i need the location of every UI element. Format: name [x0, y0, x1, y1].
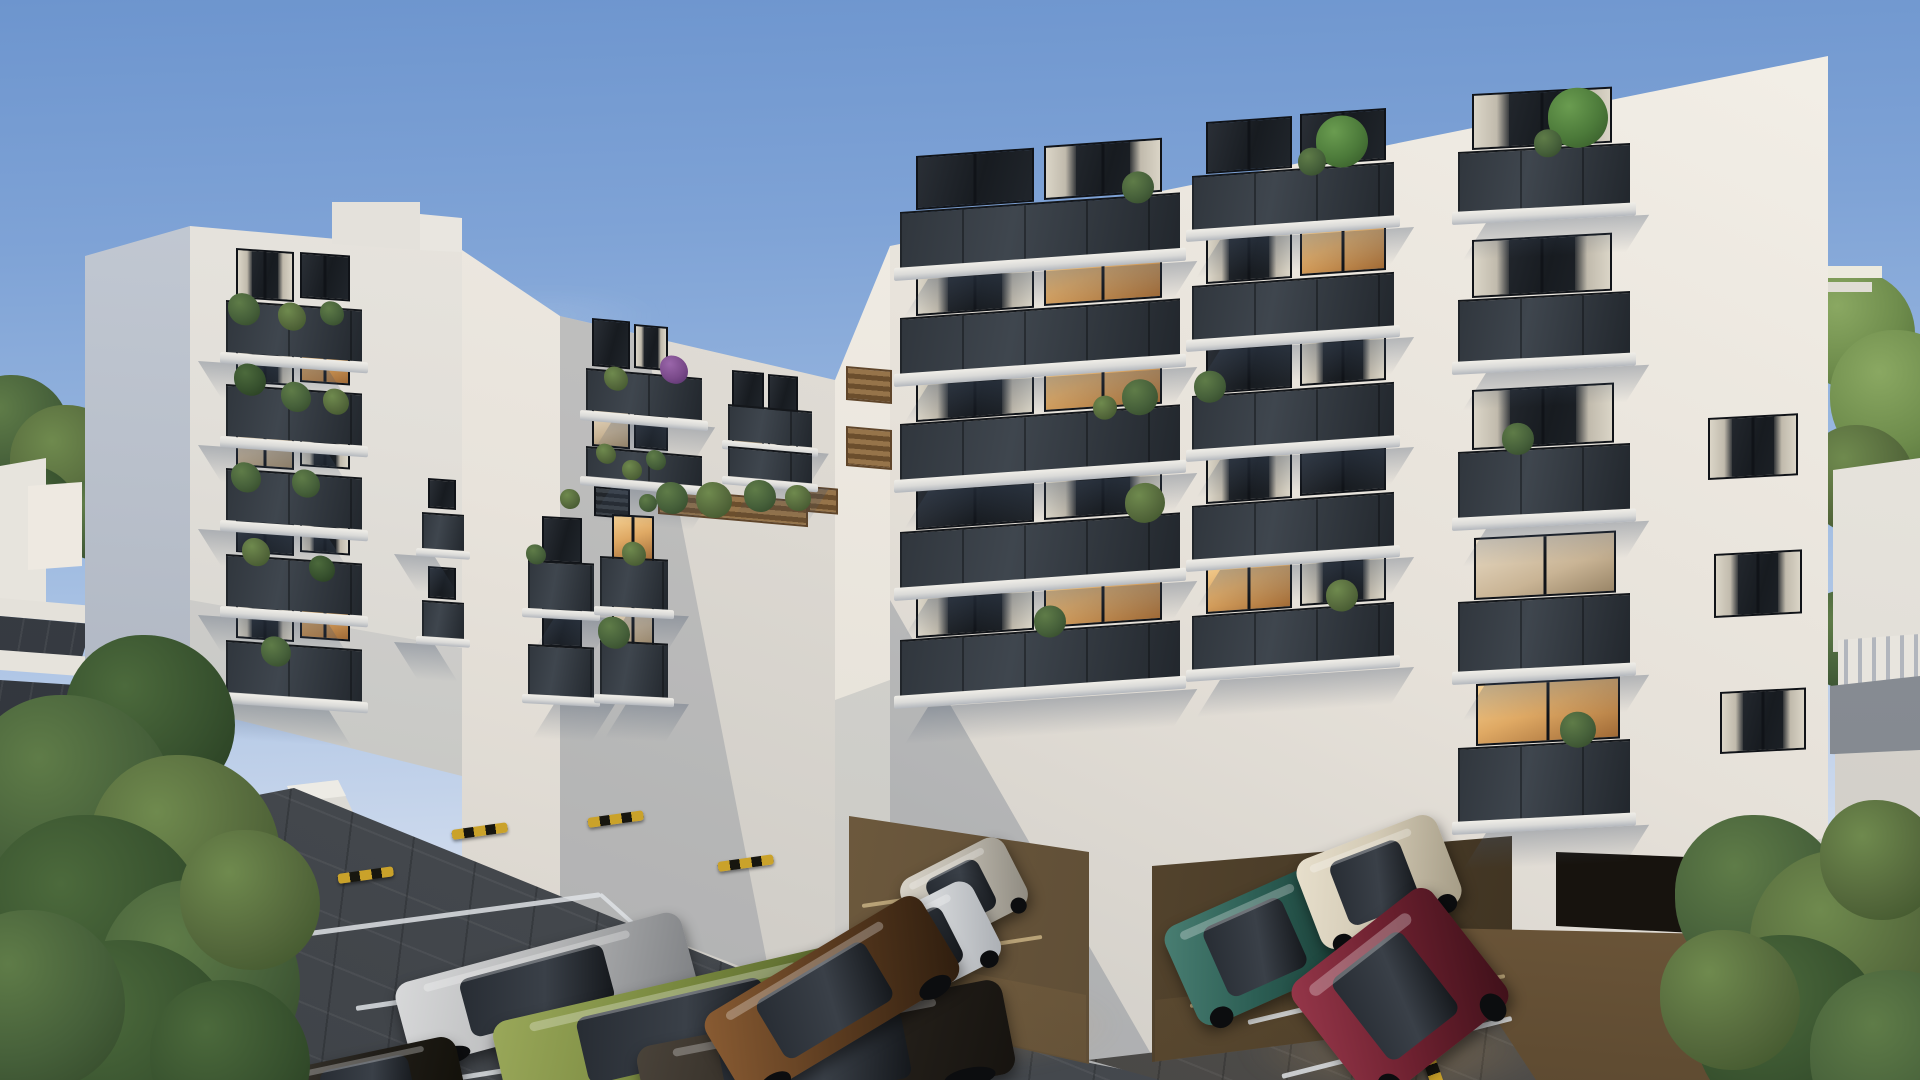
terrace-bushes — [639, 494, 657, 512]
right-bldg-window — [1206, 116, 1292, 174]
right-bldg-balcony-plant — [1298, 147, 1326, 177]
terrace-bushes — [744, 480, 776, 512]
terrace-bushes — [656, 482, 688, 514]
window-mullion — [1762, 692, 1765, 750]
window-mullion — [1248, 121, 1251, 169]
right-bldg-balcony-plant — [1034, 604, 1066, 638]
right-bldg-balcony-plant — [1326, 578, 1358, 612]
small-balcony-glass — [528, 644, 594, 697]
right-bldg-window — [916, 148, 1034, 210]
right-bldg-balcony-plant — [1093, 395, 1117, 421]
right-bldg-balcony-plant — [1194, 370, 1226, 404]
curtain — [1774, 415, 1796, 474]
small-balcony-glass — [600, 640, 668, 698]
curtain — [238, 250, 252, 297]
left-bldg-balcony-glass — [226, 468, 362, 530]
curtain — [1710, 419, 1732, 478]
small-balcony-glass — [528, 560, 594, 611]
right-bldg-balcony-plant — [1125, 481, 1165, 524]
window-mullion — [1102, 144, 1105, 194]
curtain — [1778, 551, 1800, 612]
terrace-bushes — [785, 485, 811, 511]
left-bldg-balcony-glass — [226, 554, 362, 616]
right-bldg-balcony-glass — [1458, 291, 1630, 362]
center-bldg-window — [592, 318, 630, 369]
curtain — [1716, 555, 1738, 616]
center-bldg-balcony-plant — [646, 449, 666, 471]
right-bldg-balcony-glass — [1458, 739, 1630, 822]
window-mullion — [974, 154, 977, 204]
right-bldg-balcony-plant — [1502, 422, 1534, 456]
left-bldg-step-balcony-glass — [422, 512, 464, 551]
curtain — [636, 326, 644, 367]
architectural-render-scene — [0, 0, 1920, 1080]
terrace-bushes — [622, 460, 642, 480]
left-bldg-window — [300, 252, 350, 301]
return-wall-slat-panel — [846, 366, 892, 404]
terrace-bushes — [696, 482, 732, 518]
right-edge-window — [1708, 413, 1798, 480]
right-bldg-balcony-plant — [1122, 170, 1154, 204]
small-balcony-plant — [526, 544, 546, 565]
window-mullion — [1752, 418, 1755, 476]
curtain — [1046, 146, 1076, 198]
right-bldg-balcony-plant — [1122, 378, 1158, 417]
right-edge-window — [1714, 549, 1802, 618]
return-wall-slat-panel — [846, 426, 892, 470]
left-bldg-balcony-plant — [278, 302, 306, 332]
curtain — [278, 253, 292, 300]
left-bldg-balcony-glass — [226, 384, 362, 446]
window-mullion — [324, 256, 327, 298]
right-bldg-balcony-plant — [1534, 129, 1562, 158]
right-bldg-balcony-plant — [1560, 711, 1596, 749]
right-edge-window — [1720, 687, 1806, 754]
right-bldg-balcony-glass — [1458, 593, 1630, 672]
curtain — [1722, 693, 1743, 752]
left-bldg-balcony-glass — [226, 640, 362, 702]
right-bldg-balcony-glass — [1458, 143, 1630, 212]
small-balcony-glass — [600, 556, 668, 610]
left-bldg-balcony-glass — [226, 300, 362, 362]
right-bldg-balcony-glass — [1458, 443, 1630, 518]
window-mullion — [1757, 554, 1760, 614]
window-mullion — [264, 252, 267, 298]
left-bldg-balcony-plant — [323, 388, 349, 416]
curtain — [1783, 690, 1804, 749]
small-balcony-window — [542, 516, 582, 564]
curtain — [1474, 94, 1509, 148]
left-bldg-step-balcony-glass — [422, 600, 464, 639]
left-bldg-step-window — [428, 478, 456, 510]
terrace-bushes — [560, 489, 580, 509]
